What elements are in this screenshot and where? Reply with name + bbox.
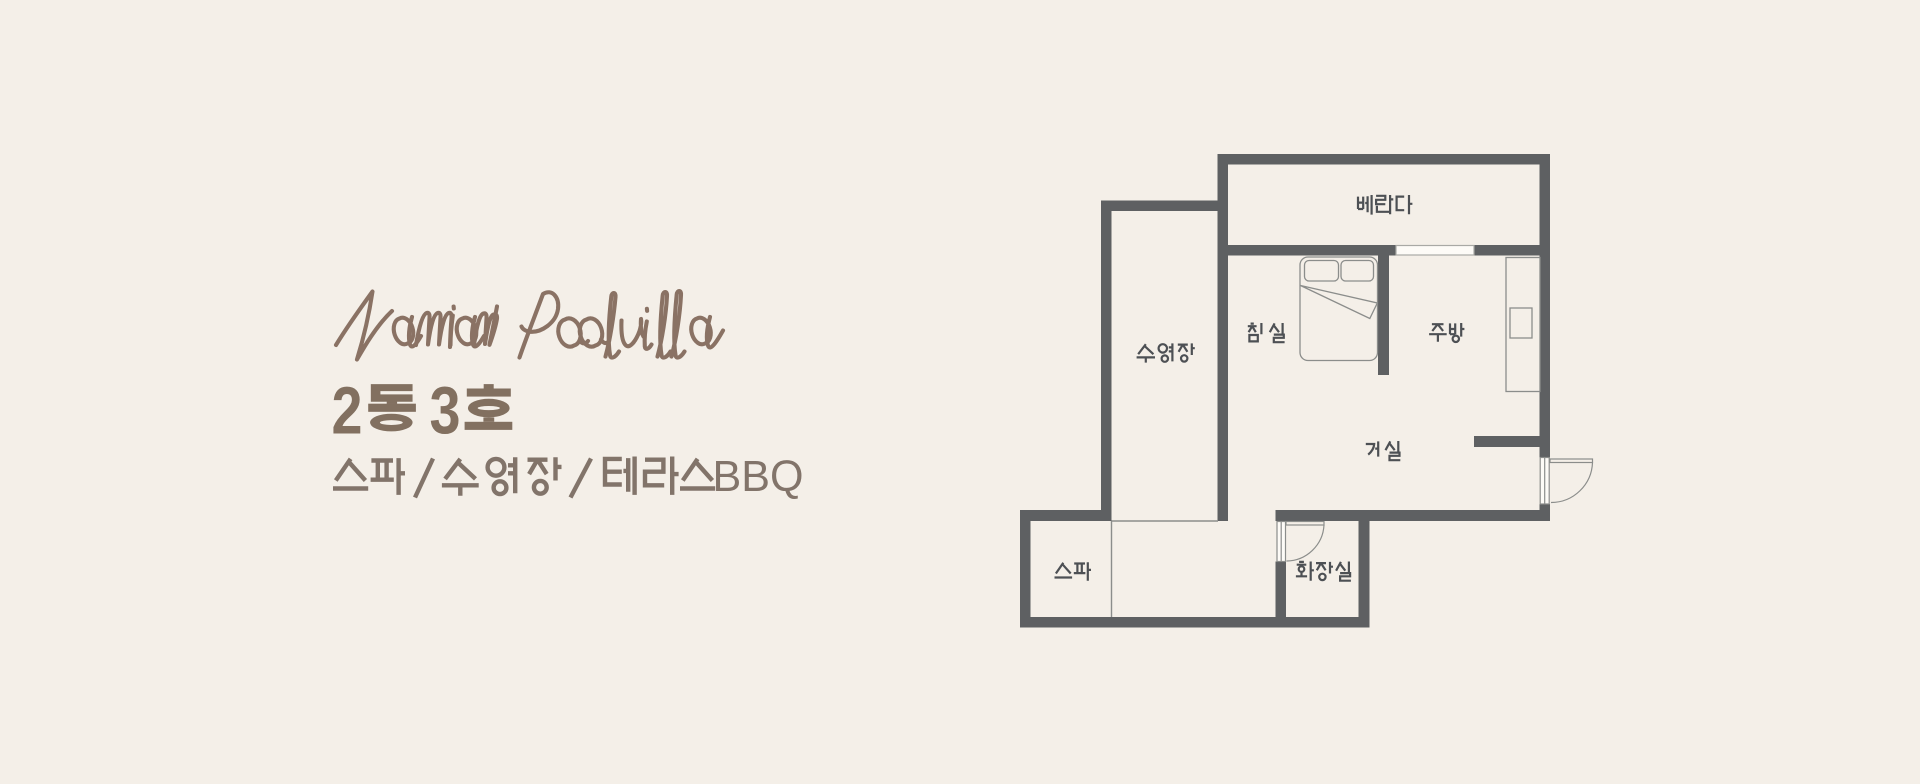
- svg-text:2: 2: [332, 373, 363, 448]
- svg-text:BBQ: BBQ: [713, 452, 804, 501]
- svg-text:3: 3: [430, 373, 461, 448]
